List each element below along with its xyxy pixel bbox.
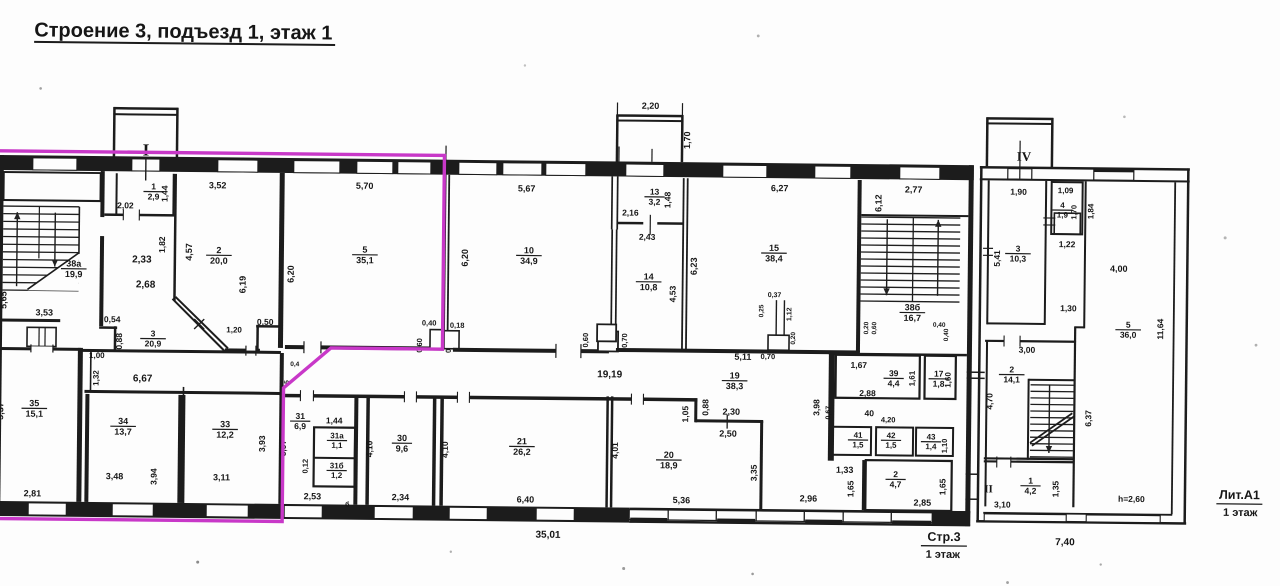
svg-text:1 этаж: 1 этаж — [1223, 507, 1258, 519]
svg-text:42: 42 — [887, 431, 897, 440]
svg-text:1,44: 1,44 — [326, 415, 343, 425]
svg-text:2,20: 2,20 — [642, 101, 660, 111]
svg-text:1,5: 1,5 — [852, 440, 864, 449]
svg-text:39: 39 — [889, 368, 899, 378]
svg-text:0,12: 0,12 — [301, 459, 310, 474]
svg-text:14,1: 14,1 — [1003, 374, 1020, 384]
svg-text:2,77: 2,77 — [905, 184, 923, 194]
svg-text:2,96: 2,96 — [800, 493, 818, 503]
svg-text:4,20: 4,20 — [881, 415, 896, 424]
svg-text:6,20: 6,20 — [460, 249, 470, 267]
svg-text:3,48: 3,48 — [106, 471, 124, 481]
svg-text:1 этаж: 1 этаж — [926, 549, 961, 561]
svg-text:33: 33 — [220, 419, 230, 429]
svg-text:35: 35 — [29, 398, 39, 408]
svg-text:0,60: 0,60 — [871, 321, 878, 334]
svg-text:1,32: 1,32 — [92, 370, 101, 386]
svg-text:1,1: 1,1 — [331, 441, 343, 450]
svg-text:Строение 3, подъезд 1, этаж 1: Строение 3, подъезд 1, этаж 1 — [34, 19, 332, 44]
svg-text:1,20: 1,20 — [226, 325, 242, 334]
svg-text:6,27: 6,27 — [771, 183, 789, 193]
svg-text:40: 40 — [865, 408, 875, 418]
svg-text:43: 43 — [927, 433, 937, 442]
svg-text:3,11: 3,11 — [213, 472, 230, 482]
svg-text:34,9: 34,9 — [520, 256, 538, 266]
svg-text:1: 1 — [151, 181, 156, 191]
svg-text:2,85: 2,85 — [914, 498, 932, 508]
svg-text:5: 5 — [362, 245, 367, 255]
svg-text:3,53: 3,53 — [35, 307, 53, 317]
svg-text:11,64: 11,64 — [1155, 318, 1165, 339]
svg-text:20,0: 20,0 — [210, 256, 228, 266]
svg-text:2,68: 2,68 — [136, 279, 156, 290]
svg-text:1,84: 1,84 — [1086, 203, 1095, 219]
svg-text:12,2: 12,2 — [216, 430, 234, 440]
svg-text:1,44: 1,44 — [159, 185, 169, 202]
svg-text:1,5: 1,5 — [885, 441, 897, 450]
svg-text:4,70: 4,70 — [984, 393, 994, 410]
svg-text:9,6: 9,6 — [396, 444, 409, 454]
svg-text:6,9: 6,9 — [294, 421, 306, 431]
svg-text:5,41: 5,41 — [992, 250, 1002, 267]
svg-text:2,43: 2,43 — [639, 232, 656, 242]
svg-text:35,01: 35,01 — [535, 530, 561, 541]
svg-text:4,01: 4,01 — [610, 442, 620, 459]
svg-text:0,70: 0,70 — [761, 352, 776, 361]
svg-text:3,52: 3,52 — [209, 180, 227, 190]
svg-text:15,1: 15,1 — [25, 409, 43, 419]
svg-text:2,9: 2,9 — [148, 191, 160, 201]
svg-text:2,53: 2,53 — [304, 491, 322, 501]
svg-text:2: 2 — [893, 469, 898, 479]
svg-text:3,98: 3,98 — [811, 399, 821, 416]
svg-text:3,35: 3,35 — [749, 464, 759, 481]
svg-text:6,12: 6,12 — [873, 194, 883, 212]
svg-text:26,2: 26,2 — [513, 447, 531, 457]
svg-text:0,40: 0,40 — [943, 328, 950, 341]
svg-text:34: 34 — [118, 416, 128, 426]
svg-text:5,70: 5,70 — [356, 181, 374, 191]
svg-text:II: II — [984, 483, 993, 495]
svg-text:0,4: 0,4 — [290, 361, 299, 368]
svg-text:1,09: 1,09 — [1058, 186, 1074, 195]
svg-text:4,2: 4,2 — [1025, 486, 1037, 496]
svg-text:7,40: 7,40 — [1055, 537, 1075, 548]
svg-text:2,33: 2,33 — [132, 254, 152, 265]
svg-text:1,65: 1,65 — [937, 478, 947, 495]
svg-text:1,70: 1,70 — [1069, 205, 1078, 220]
svg-text:1,60: 1,60 — [944, 372, 953, 388]
svg-text:0,88: 0,88 — [700, 399, 710, 416]
svg-text:б: б — [345, 501, 350, 509]
svg-text:4,10: 4,10 — [364, 440, 374, 457]
svg-text:4,7: 4,7 — [890, 479, 902, 489]
svg-text:0,40: 0,40 — [933, 322, 946, 329]
svg-text:5,36: 5,36 — [673, 495, 691, 505]
svg-text:3,94: 3,94 — [149, 468, 159, 485]
svg-text:19,19: 19,19 — [597, 369, 623, 380]
svg-text:IV: IV — [1017, 149, 1032, 164]
svg-text:3: 3 — [151, 328, 156, 338]
svg-text:1,30: 1,30 — [1060, 303, 1077, 313]
svg-text:2,02: 2,02 — [117, 200, 134, 210]
svg-text:0,25: 0,25 — [758, 304, 765, 317]
svg-text:2,81: 2,81 — [24, 488, 42, 498]
svg-text:4,57: 4,57 — [184, 243, 194, 261]
svg-text:38,4: 38,4 — [765, 253, 783, 263]
svg-text:1,10: 1,10 — [940, 439, 949, 454]
svg-text:2: 2 — [216, 245, 221, 255]
svg-text:41: 41 — [854, 431, 864, 440]
svg-text:1,05: 1,05 — [680, 406, 690, 423]
svg-text:5,65: 5,65 — [0, 291, 9, 309]
svg-text:0,40: 0,40 — [422, 318, 437, 327]
svg-text:20: 20 — [664, 450, 674, 460]
svg-text:1: 1 — [1028, 476, 1033, 486]
svg-text:6,37: 6,37 — [1083, 410, 1093, 427]
svg-text:20,9: 20,9 — [145, 338, 162, 348]
svg-text:31б: 31б — [330, 461, 344, 470]
svg-text:0,20: 0,20 — [790, 332, 797, 345]
svg-text:1,70: 1,70 — [682, 131, 692, 149]
svg-text:3,2: 3,2 — [649, 197, 661, 207]
svg-text:14: 14 — [644, 272, 654, 282]
svg-text:2: 2 — [1009, 364, 1014, 374]
svg-text:13: 13 — [650, 187, 660, 197]
svg-text:3,00: 3,00 — [1019, 345, 1036, 355]
svg-text:5: 5 — [1126, 320, 1131, 330]
svg-text:38б: 38б — [905, 302, 921, 312]
svg-text:1,67: 1,67 — [850, 360, 867, 370]
svg-text:15: 15 — [769, 243, 779, 253]
svg-text:2,88: 2,88 — [859, 388, 876, 398]
svg-text:1,48: 1,48 — [662, 191, 672, 208]
svg-text:17: 17 — [934, 369, 944, 379]
svg-text:1,65: 1,65 — [845, 480, 855, 497]
svg-text:6,40: 6,40 — [517, 494, 535, 504]
svg-text:3,93: 3,93 — [257, 435, 267, 452]
svg-text:1,35: 1,35 — [1050, 480, 1060, 497]
svg-text:36,0: 36,0 — [1120, 330, 1137, 340]
svg-text:2,30: 2,30 — [722, 407, 740, 417]
svg-text:4,53: 4,53 — [667, 285, 677, 302]
svg-text:10,8: 10,8 — [640, 282, 658, 292]
svg-text:1,90: 1,90 — [1010, 187, 1027, 197]
svg-text:16,7: 16,7 — [903, 313, 921, 323]
svg-text:19: 19 — [730, 370, 740, 380]
svg-text:1,9: 1,9 — [1057, 211, 1069, 220]
svg-text:4: 4 — [1060, 201, 1065, 210]
svg-text:6,67: 6,67 — [133, 373, 153, 384]
svg-text:1,4: 1,4 — [925, 442, 937, 451]
svg-text:6,19: 6,19 — [238, 276, 248, 294]
svg-text:35,1: 35,1 — [356, 255, 374, 265]
svg-text:0,50: 0,50 — [257, 317, 274, 327]
svg-text:Стр.3: Стр.3 — [927, 530, 960, 544]
svg-text:3,10: 3,10 — [994, 499, 1011, 509]
svg-text:0,88: 0,88 — [114, 333, 124, 350]
svg-text:21: 21 — [517, 436, 527, 446]
svg-text:1,00: 1,00 — [89, 351, 105, 360]
svg-text:19,9: 19,9 — [65, 269, 83, 279]
svg-text:1,33: 1,33 — [836, 465, 854, 475]
svg-text:30: 30 — [397, 433, 407, 443]
svg-text:38а: 38а — [66, 259, 82, 269]
svg-text:38,3: 38,3 — [726, 381, 744, 391]
svg-text:0,18: 0,18 — [450, 321, 465, 330]
svg-text:31: 31 — [295, 411, 305, 421]
svg-text:5,67: 5,67 — [518, 183, 536, 193]
svg-text:3: 3 — [1016, 243, 1021, 253]
svg-text:10: 10 — [524, 245, 534, 255]
svg-text:10,3: 10,3 — [1010, 253, 1027, 263]
svg-text:1,61: 1,61 — [908, 370, 917, 386]
svg-text:1,22: 1,22 — [1059, 239, 1076, 249]
svg-text:0,67: 0,67 — [825, 406, 832, 420]
svg-text:4,10: 4,10 — [440, 441, 450, 458]
svg-text:h=2,60: h=2,60 — [1118, 494, 1145, 504]
svg-text:2,34: 2,34 — [392, 492, 410, 502]
svg-text:31а: 31а — [330, 431, 344, 440]
svg-text:5,37: 5,37 — [0, 402, 5, 420]
svg-text:0,37: 0,37 — [768, 292, 782, 299]
svg-text:2,50: 2,50 — [719, 429, 737, 439]
svg-text:I: I — [143, 140, 150, 159]
svg-text:0,54: 0,54 — [104, 314, 121, 324]
svg-text:Лит.А1: Лит.А1 — [1219, 488, 1260, 502]
svg-text:1,12: 1,12 — [786, 307, 793, 321]
svg-text:13,7: 13,7 — [114, 427, 132, 437]
svg-text:1,82: 1,82 — [157, 236, 167, 253]
svg-text:4,00: 4,00 — [1110, 264, 1128, 274]
svg-text:5,11: 5,11 — [734, 352, 751, 362]
svg-text:6,20: 6,20 — [286, 265, 296, 283]
svg-text:6,23: 6,23 — [689, 257, 699, 275]
svg-text:1,2: 1,2 — [331, 471, 343, 480]
svg-text:18,9: 18,9 — [660, 460, 678, 470]
svg-text:0,70: 0,70 — [620, 333, 629, 348]
svg-text:4,4: 4,4 — [888, 378, 900, 388]
svg-text:0,60: 0,60 — [581, 333, 590, 348]
svg-text:2,16: 2,16 — [622, 208, 639, 218]
svg-text:0,20: 0,20 — [863, 321, 870, 334]
